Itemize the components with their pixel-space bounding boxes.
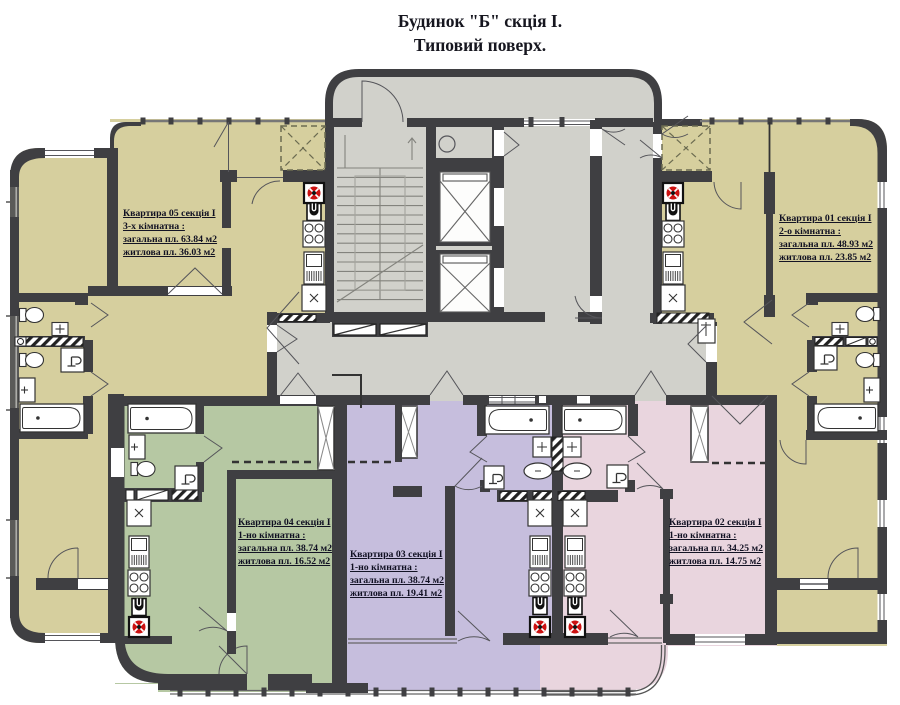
svg-text:1-но кімнатна :: 1-но кімнатна : [238,530,306,541]
svg-text:загальна пл. 34.25 м2: загальна пл. 34.25 м2 [669,543,763,554]
svg-text:житлова пл. 19.41 м2: житлова пл. 19.41 м2 [350,588,442,599]
svg-text:житлова пл. 16.52 м2: житлова пл. 16.52 м2 [238,556,330,567]
svg-text:Квартира 02 секція I: Квартира 02 секція I [669,517,762,528]
svg-text:1-но кімнатна :: 1-но кімнатна : [350,562,418,573]
svg-text:Квартира 05 секція I: Квартира 05 секція I [123,208,216,219]
svg-text:Будинок "Б" скція I.: Будинок "Б" скція I. [398,11,562,31]
svg-text:житлова пл. 23.85 м2: житлова пл. 23.85 м2 [779,252,871,263]
svg-text:загальна пл. 38.74 м2: загальна пл. 38.74 м2 [350,575,444,586]
svg-text:Типовий поверх.: Типовий поверх. [414,35,546,55]
svg-text:житлова пл. 14.75 м2: житлова пл. 14.75 м2 [669,556,761,567]
svg-text:3-х кімнатна :: 3-х кімнатна : [123,221,185,232]
svg-text:Квартира 01 секція I: Квартира 01 секція I [779,213,872,224]
svg-text:загальна пл. 48.93 м2: загальна пл. 48.93 м2 [779,239,873,250]
svg-text:2-о кімнатна :: 2-о кімнатна : [779,226,841,237]
svg-text:Квартира 03 секція I: Квартира 03 секція I [350,549,443,560]
svg-text:житлова пл. 36.03 м2: житлова пл. 36.03 м2 [123,247,215,258]
svg-text:Квартира 04 секція I: Квартира 04 секція I [238,517,331,528]
svg-text:загальна пл. 63.84 м2: загальна пл. 63.84 м2 [123,234,217,245]
svg-text:1-но кімнатна :: 1-но кімнатна : [669,530,737,541]
svg-text:загальна пл. 38.74 м2: загальна пл. 38.74 м2 [238,543,332,554]
